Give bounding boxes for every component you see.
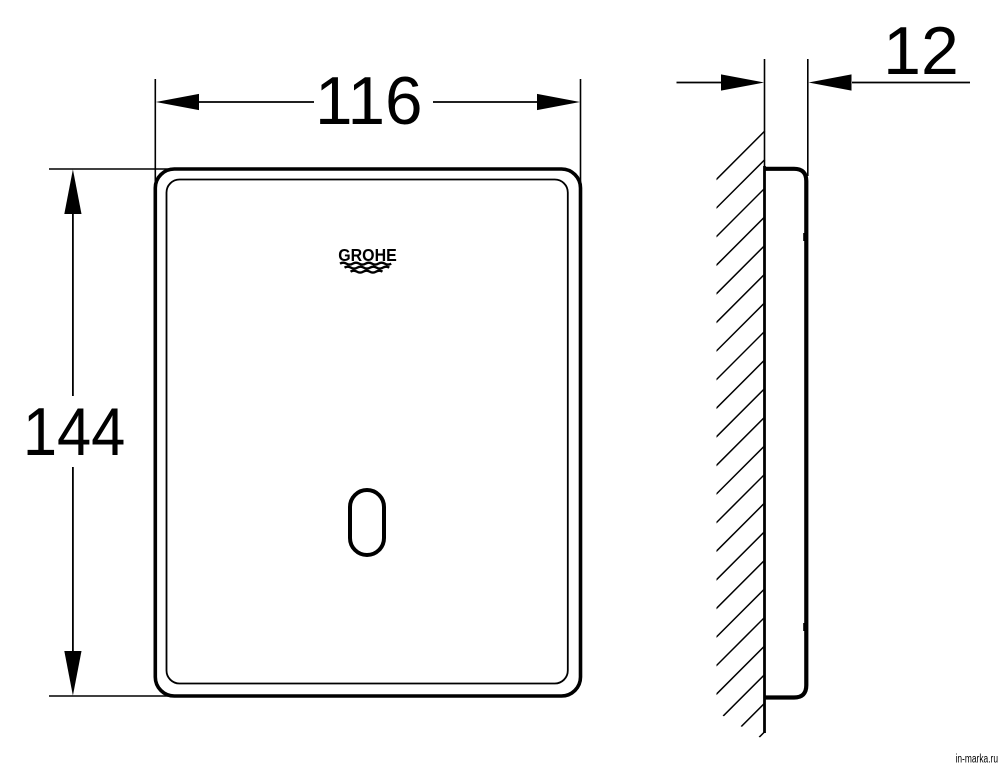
svg-text:12: 12 <box>883 13 959 89</box>
svg-text:in-marka.ru: in-marka.ru <box>956 754 999 764</box>
svg-text:144: 144 <box>23 394 126 470</box>
svg-text:116: 116 <box>315 63 423 139</box>
